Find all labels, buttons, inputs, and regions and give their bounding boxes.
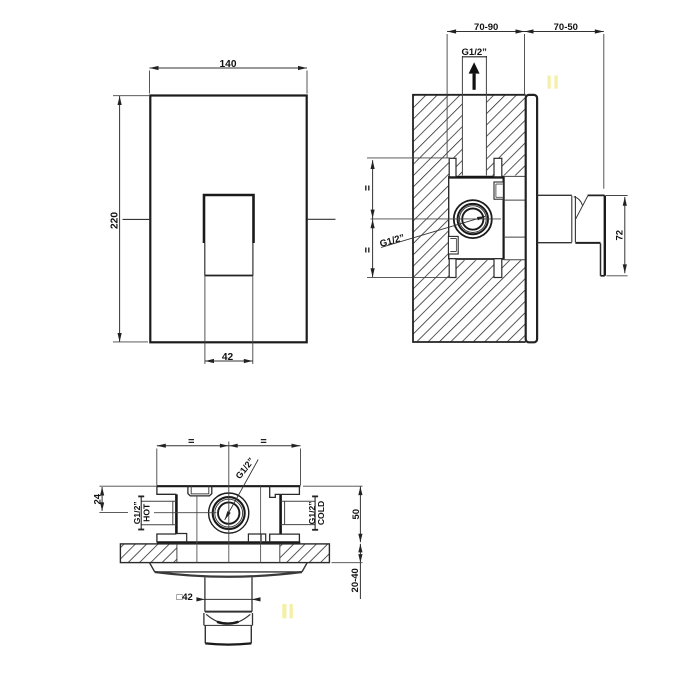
- svg-text:140: 140: [220, 59, 237, 70]
- svg-text:□42: □42: [176, 592, 192, 603]
- svg-text:70-90: 70-90: [474, 22, 498, 33]
- svg-text:20-40: 20-40: [350, 568, 361, 592]
- svg-text:42: 42: [222, 352, 234, 363]
- svg-text:HOT: HOT: [142, 503, 152, 522]
- svg-text:72: 72: [615, 230, 626, 241]
- svg-text:50: 50: [351, 509, 362, 520]
- svg-text:COLD: COLD: [316, 501, 326, 525]
- svg-text:70-50: 70-50: [554, 22, 578, 33]
- svg-text:220: 220: [109, 212, 120, 229]
- svg-text:24: 24: [92, 493, 103, 504]
